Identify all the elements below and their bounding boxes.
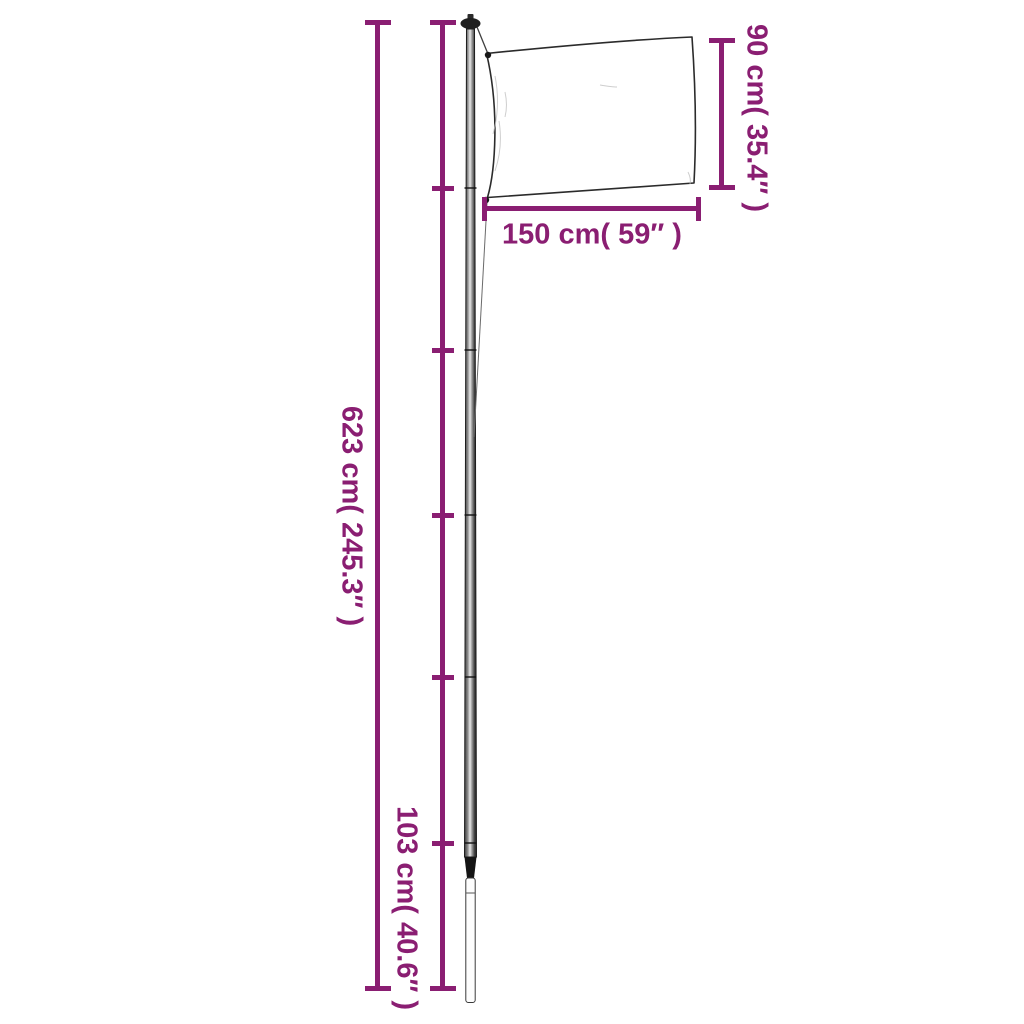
flag-height-label: 90 cm( 35.4″ )	[742, 24, 771, 212]
segment-tick-2	[432, 348, 454, 353]
segments-dim-cap-bottom	[430, 986, 456, 991]
pole-finial-icon	[461, 14, 481, 29]
pole-body	[465, 29, 477, 857]
segment-tick-4	[432, 675, 454, 680]
pole-ground-sleeve	[466, 878, 475, 1003]
total-height-label: 623 cm( 245.3″ )	[337, 406, 366, 626]
flag-width-dim-cap-left	[482, 197, 487, 221]
flag-height-dim-cap-bottom	[709, 185, 735, 190]
flag-width-dim-cap-right	[696, 197, 701, 221]
segment-tick-5	[432, 841, 454, 846]
product-dimension-image: 623 cm( 245.3″ ) 103 cm( 40.6″ ) 90 cm( …	[0, 0, 1024, 1024]
total-height-dim-cap-bottom	[365, 986, 391, 991]
halyard-rope-bottom	[474, 203, 487, 437]
flag-height-dim-line	[719, 40, 724, 190]
total-height-dim-line	[375, 20, 380, 991]
flagpole-artwork	[0, 0, 1024, 1024]
segment-tick-1	[432, 186, 454, 191]
bottom-section-label: 103 cm( 40.6″ )	[392, 806, 421, 1010]
flag-width-label: 150 cm( 59″ )	[502, 221, 682, 250]
flag-clip-top	[485, 52, 491, 58]
flag-height-dim-cap-top	[709, 38, 735, 43]
flag-width-dim-line	[482, 206, 701, 211]
segment-tick-3	[432, 513, 454, 518]
flag	[487, 37, 696, 198]
halyard-rope-top	[477, 27, 488, 54]
pole-tip	[465, 857, 477, 878]
segments-dim-cap-top	[430, 20, 456, 25]
total-height-dim-cap-top	[365, 20, 391, 25]
